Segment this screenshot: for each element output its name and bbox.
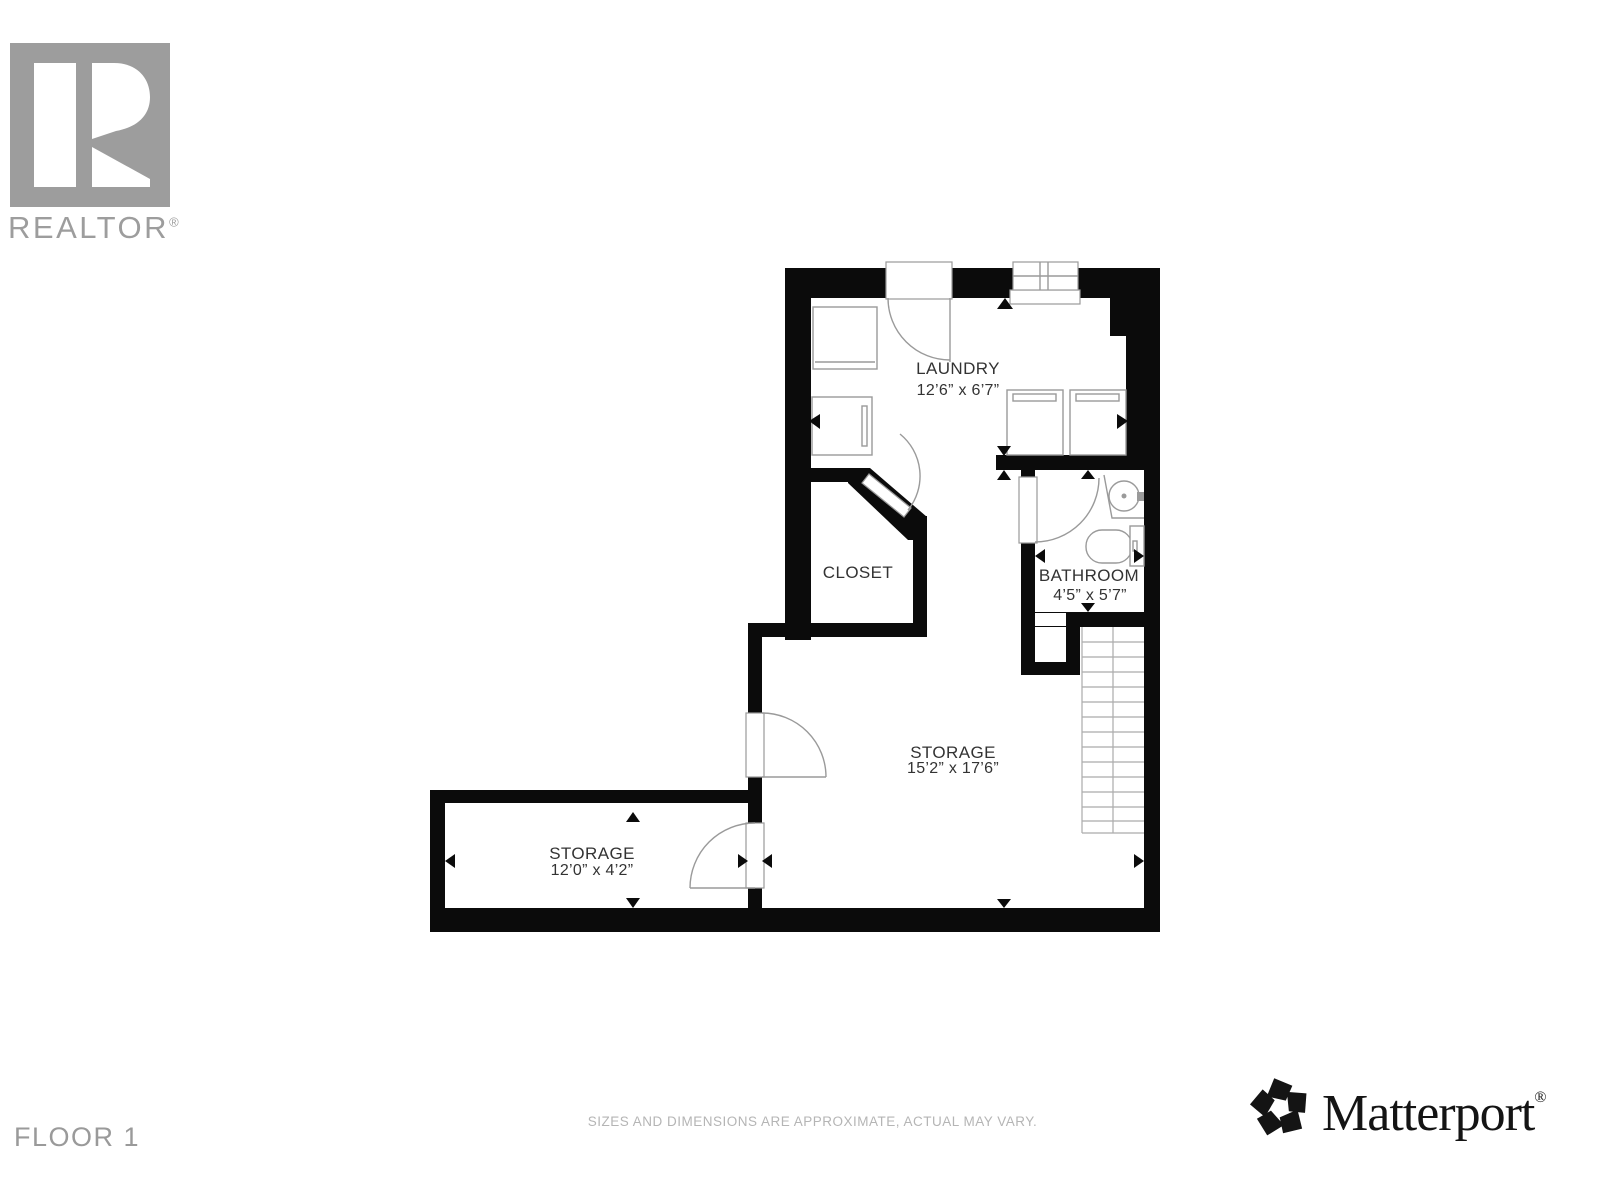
- washer-unit-left: [812, 397, 872, 455]
- storage-entry-opening: [746, 713, 764, 777]
- washer-unit-top-left: [813, 307, 877, 369]
- window-sill: [1010, 290, 1080, 304]
- dimension-arrow: [997, 470, 1011, 480]
- floorplan-page: REALTOR®: [0, 0, 1600, 1200]
- storage-main-dimensions: 15’2” x 17’6”: [907, 760, 999, 777]
- dryer-unit-1: [1007, 390, 1063, 455]
- storage-entry-door-swing: [762, 713, 826, 777]
- dimension-arrow: [626, 812, 640, 822]
- bathroom-door-opening: [1019, 477, 1037, 543]
- laundry-label: LAUNDRY: [916, 359, 1000, 378]
- bathroom-label: BATHROOM: [1039, 566, 1139, 585]
- window: [1010, 262, 1080, 304]
- laundry-dimensions: 12’6” x 6’7”: [917, 382, 1000, 399]
- storage-small-door-swing: [690, 823, 755, 888]
- storage-small-door-opening: [746, 823, 764, 888]
- laundry-appliances: [812, 307, 1126, 455]
- dimension-arrow: [1081, 470, 1095, 479]
- bathroom-alcove-opening: [1035, 613, 1066, 626]
- closet-label: CLOSET: [823, 563, 893, 582]
- bathroom-door-swing: [1035, 478, 1099, 542]
- laundry-entry-opening: [886, 262, 952, 299]
- disclaimer-text: SIZES AND DIMENSIONS ARE APPROXIMATE, AC…: [440, 1114, 1185, 1129]
- matterport-wordmark: Matterport®: [1322, 1088, 1547, 1140]
- laundry-door-swing: [888, 298, 950, 362]
- matterport-registered-mark: ®: [1534, 1089, 1546, 1106]
- matterport-wordmark-text: Matterport: [1322, 1085, 1534, 1142]
- dimension-arrow: [445, 854, 455, 868]
- dimension-arrow: [1035, 549, 1045, 563]
- dimension-arrow: [626, 898, 640, 908]
- dimension-arrow: [1081, 603, 1095, 612]
- dimension-arrow: [1134, 854, 1144, 868]
- bathroom-dimensions: 4’5” x 5’7”: [1053, 587, 1127, 604]
- storage-small-dimensions: 12’0” x 4’2”: [551, 862, 634, 879]
- storage-small-label: STORAGE: [549, 844, 635, 863]
- matterport-pinwheel-icon: [1247, 1072, 1313, 1144]
- dimension-arrow: [997, 899, 1011, 908]
- sink-icon: [1104, 475, 1144, 518]
- floor-label: FLOOR 1: [14, 1122, 140, 1153]
- staircase: [1082, 627, 1144, 833]
- walls: [430, 268, 1160, 932]
- floor-plan: LAUNDRY 12’6” x 6’7” CLOSET BATHROOM 4’5…: [0, 0, 1600, 1200]
